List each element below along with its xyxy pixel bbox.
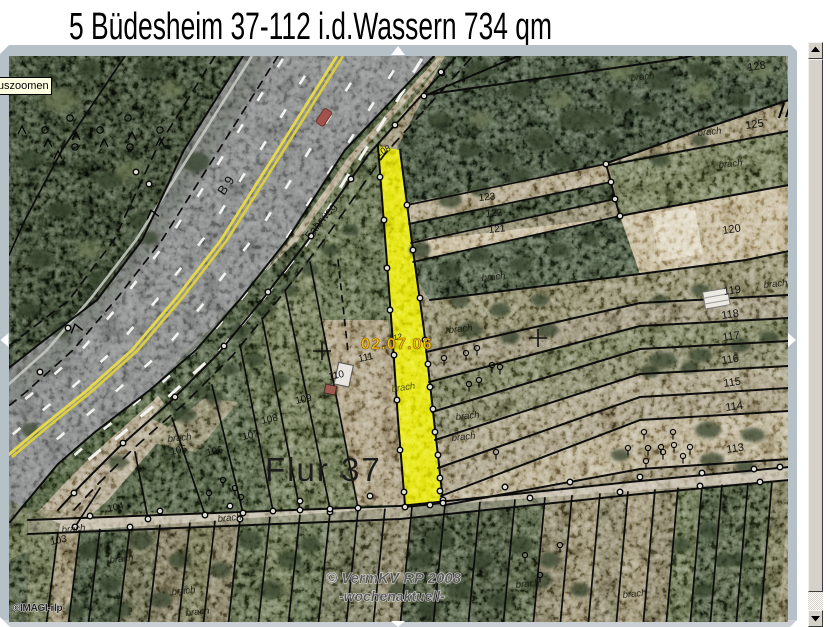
svg-text:114: 114	[725, 400, 744, 414]
svg-text:125: 125	[745, 118, 765, 132]
svg-text:121: 121	[488, 223, 506, 236]
svg-text:120: 120	[722, 223, 742, 237]
svg-text:117: 117	[722, 330, 741, 344]
svg-text:02.07.06: 02.07.06	[361, 336, 433, 353]
svg-text:116: 116	[721, 353, 740, 367]
svg-text:122: 122	[485, 207, 503, 220]
svg-text:-wochenaktuell-: -wochenaktuell-	[339, 588, 445, 604]
svg-text:©IMAGI-rlp: ©IMAGI-rlp	[13, 603, 63, 614]
svg-text:115: 115	[723, 376, 742, 390]
svg-text:128: 128	[747, 60, 767, 74]
svg-text:© VermKV RP 2008: © VermKV RP 2008	[326, 570, 462, 587]
svg-text:Flur 37: Flur 37	[265, 451, 382, 488]
svg-text:123: 123	[478, 191, 496, 204]
svg-text:119: 119	[723, 284, 742, 298]
svg-text:113: 113	[726, 442, 745, 456]
svg-text:118: 118	[721, 308, 740, 322]
